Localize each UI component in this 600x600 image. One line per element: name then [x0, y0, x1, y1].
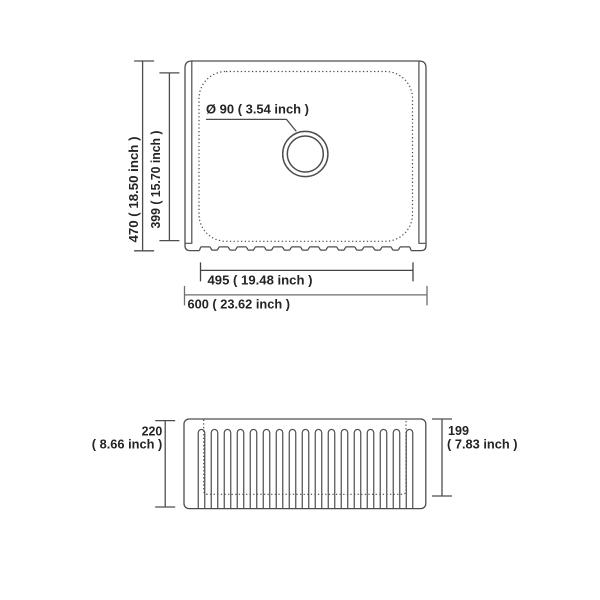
svg-text:495 ( 19.48 inch ): 495 ( 19.48 inch )	[208, 273, 313, 288]
svg-text:( 8.66 inch ): ( 8.66 inch )	[92, 437, 163, 452]
svg-text:470 ( 18.50 inch ): 470 ( 18.50 inch )	[126, 137, 141, 243]
svg-text:600 ( 23.62 inch ): 600 ( 23.62 inch )	[188, 297, 291, 312]
svg-text:Ø 90 ( 3.54 inch ): Ø 90 ( 3.54 inch )	[206, 102, 309, 117]
svg-text:( 7.83 inch ): ( 7.83 inch )	[447, 437, 518, 452]
svg-text:399 ( 15.70 inch ): 399 ( 15.70 inch )	[148, 131, 163, 229]
